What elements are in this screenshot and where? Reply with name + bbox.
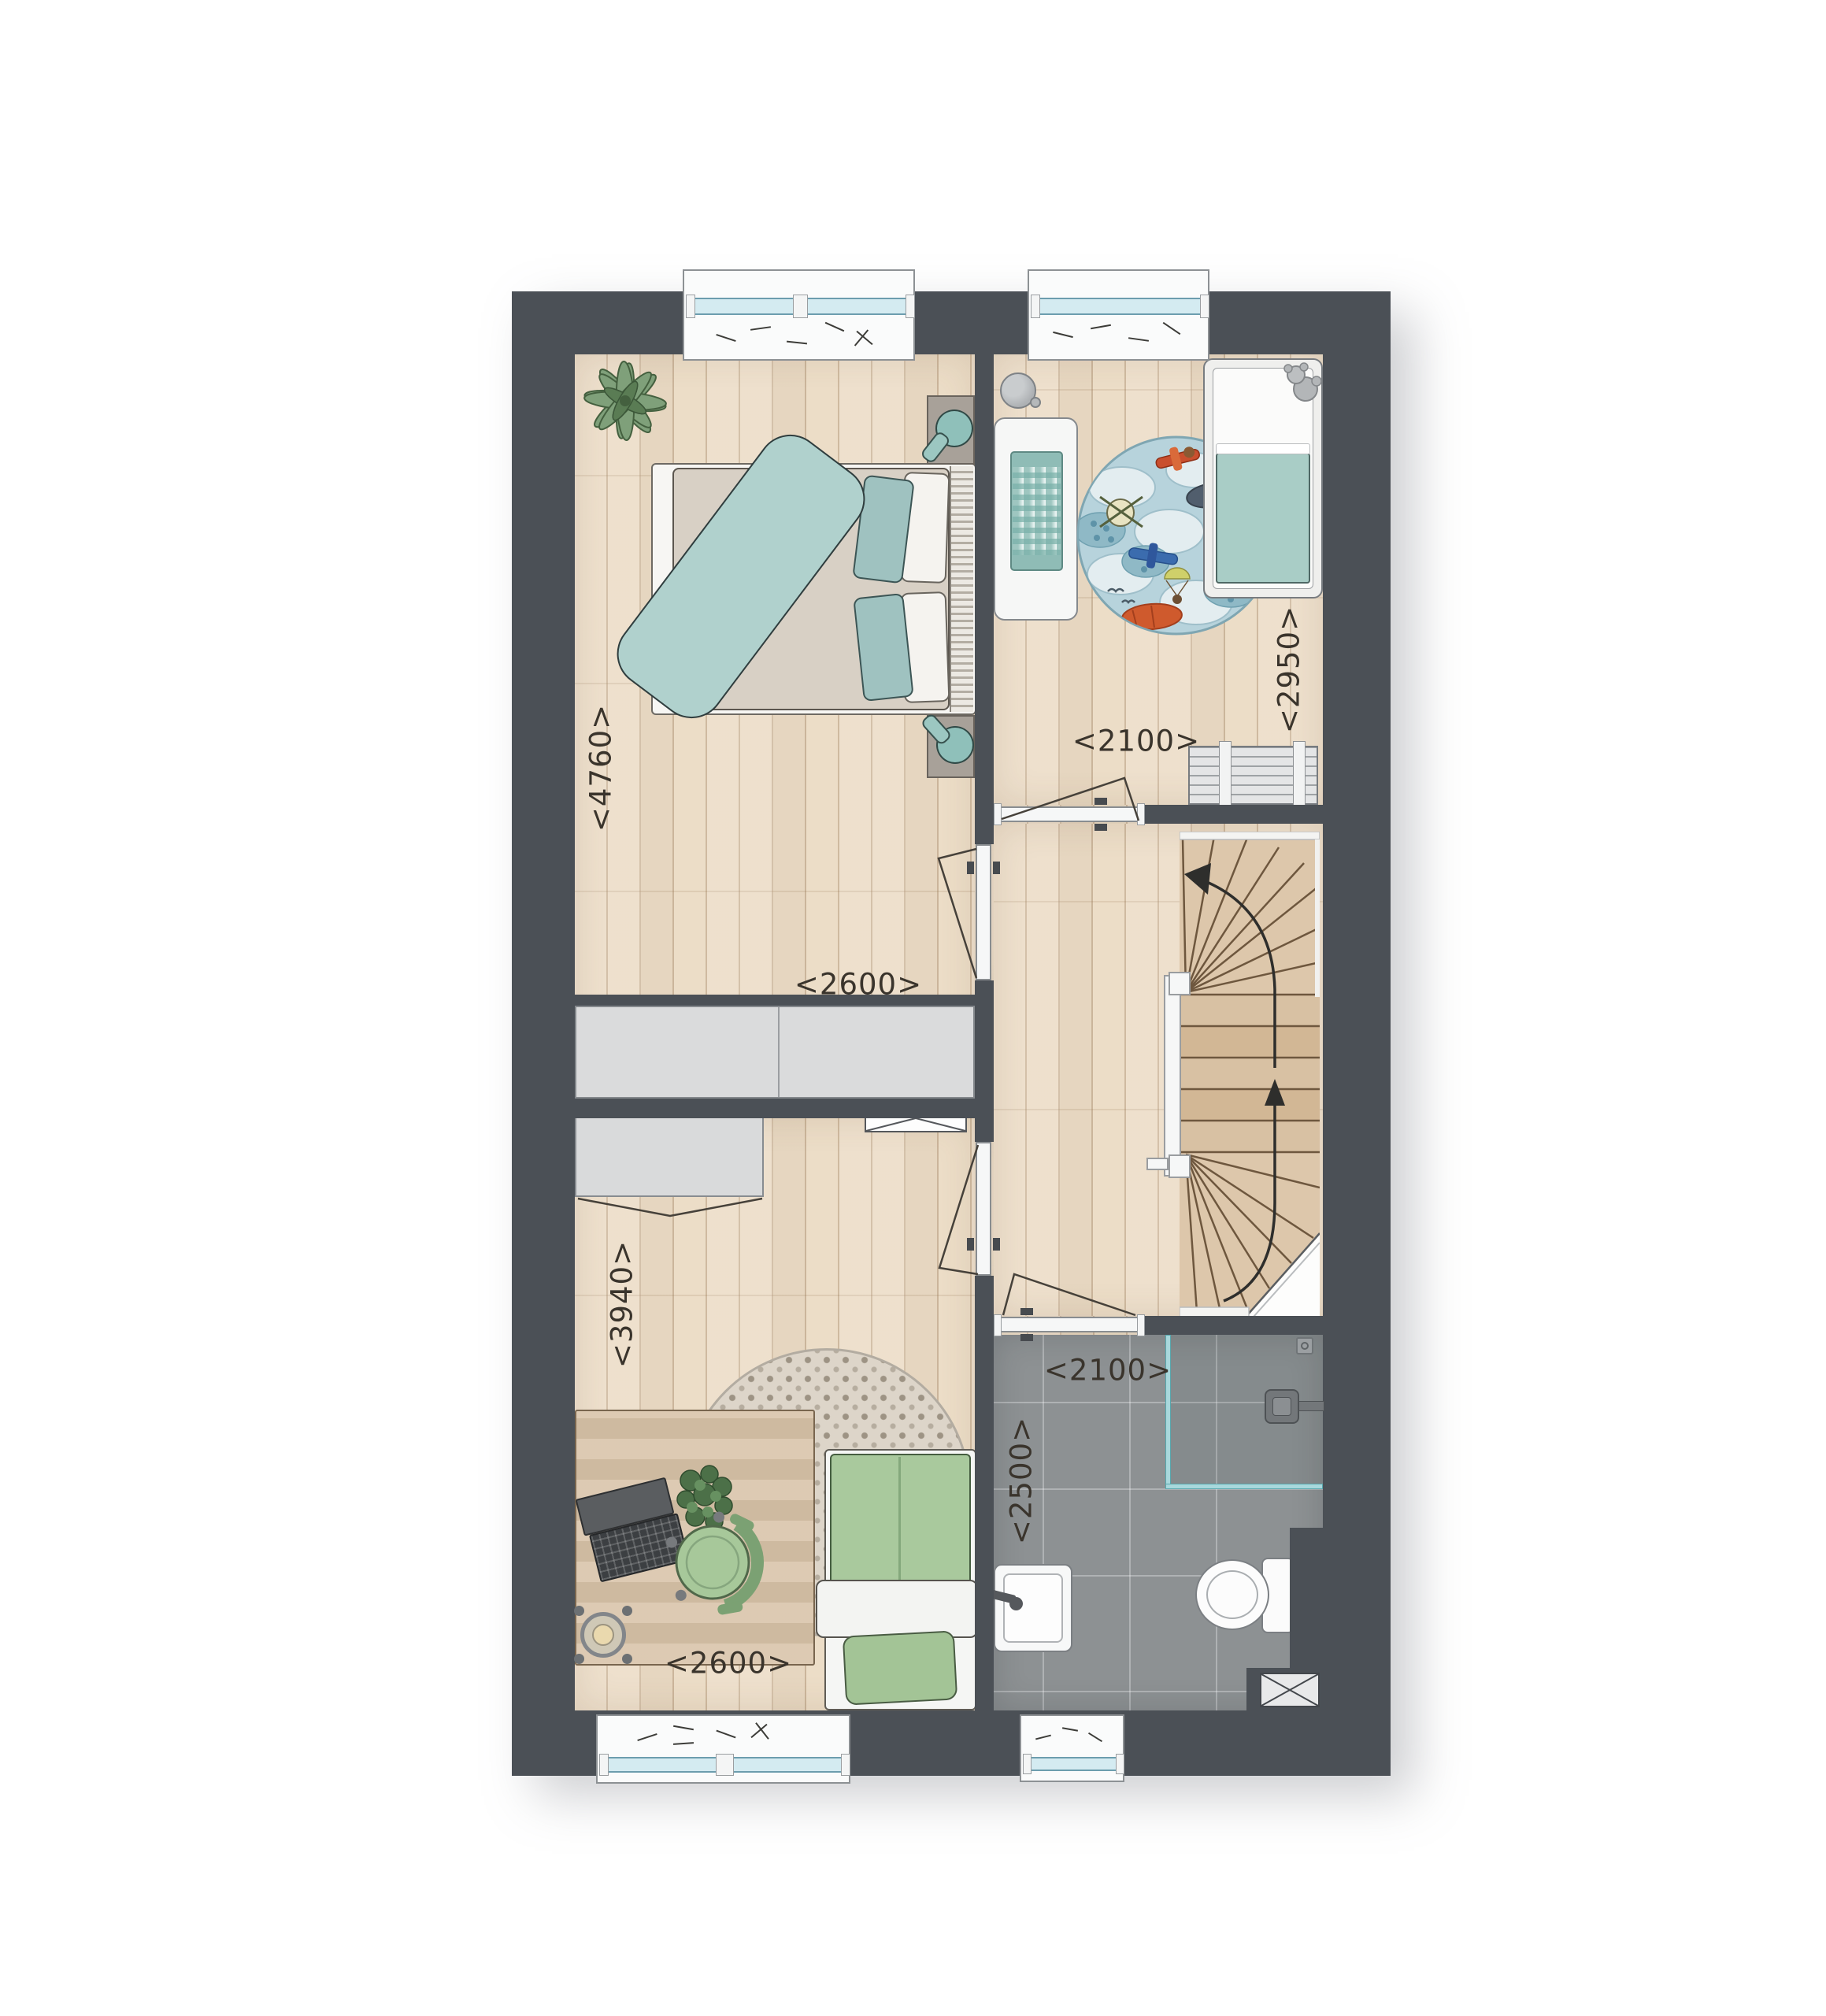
door-swing-bathroom (1003, 1274, 1135, 1315)
door-swing-master (939, 849, 976, 978)
annotation-lines (0, 0, 1826, 2016)
door-swing-teen (939, 1145, 978, 1274)
dim-kids-depth: <2950> (1272, 606, 1306, 733)
wardrobe-open-doors (578, 1199, 762, 1216)
dim-master-depth: <4760> (584, 704, 618, 832)
dim-kids-width: <2100> (1072, 724, 1200, 758)
dim-master-width: <2600> (794, 968, 922, 1002)
door-swing-kids (1002, 778, 1139, 821)
dim-bathroom-width: <2100> (1044, 1354, 1172, 1388)
dim-teen-width: <2600> (665, 1647, 792, 1681)
dim-teen-depth: <3940> (606, 1240, 639, 1368)
dim-bathroom-depth: <2500> (1005, 1417, 1039, 1544)
floor-plan-canvas: <4760> <2600> <2950> <2100> <3940> <2600… (0, 0, 1826, 2016)
